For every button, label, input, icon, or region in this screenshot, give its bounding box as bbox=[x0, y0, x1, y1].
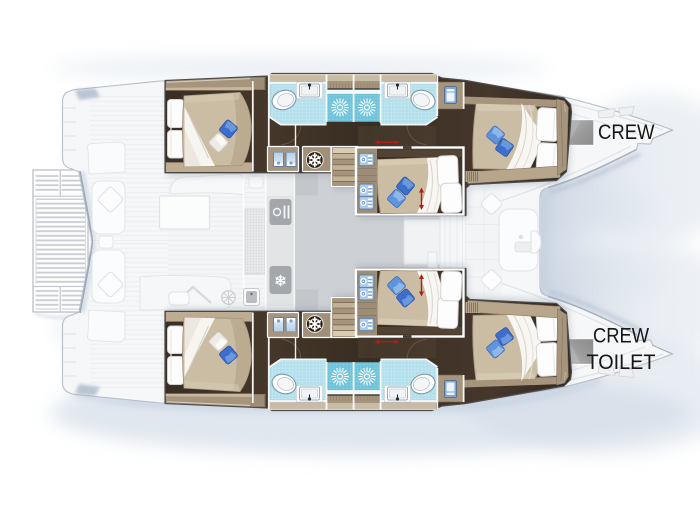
svg-text:CREW: CREW bbox=[598, 120, 655, 144]
svg-text:TOILET: TOILET bbox=[587, 350, 656, 374]
svg-text:CREW: CREW bbox=[593, 324, 650, 348]
